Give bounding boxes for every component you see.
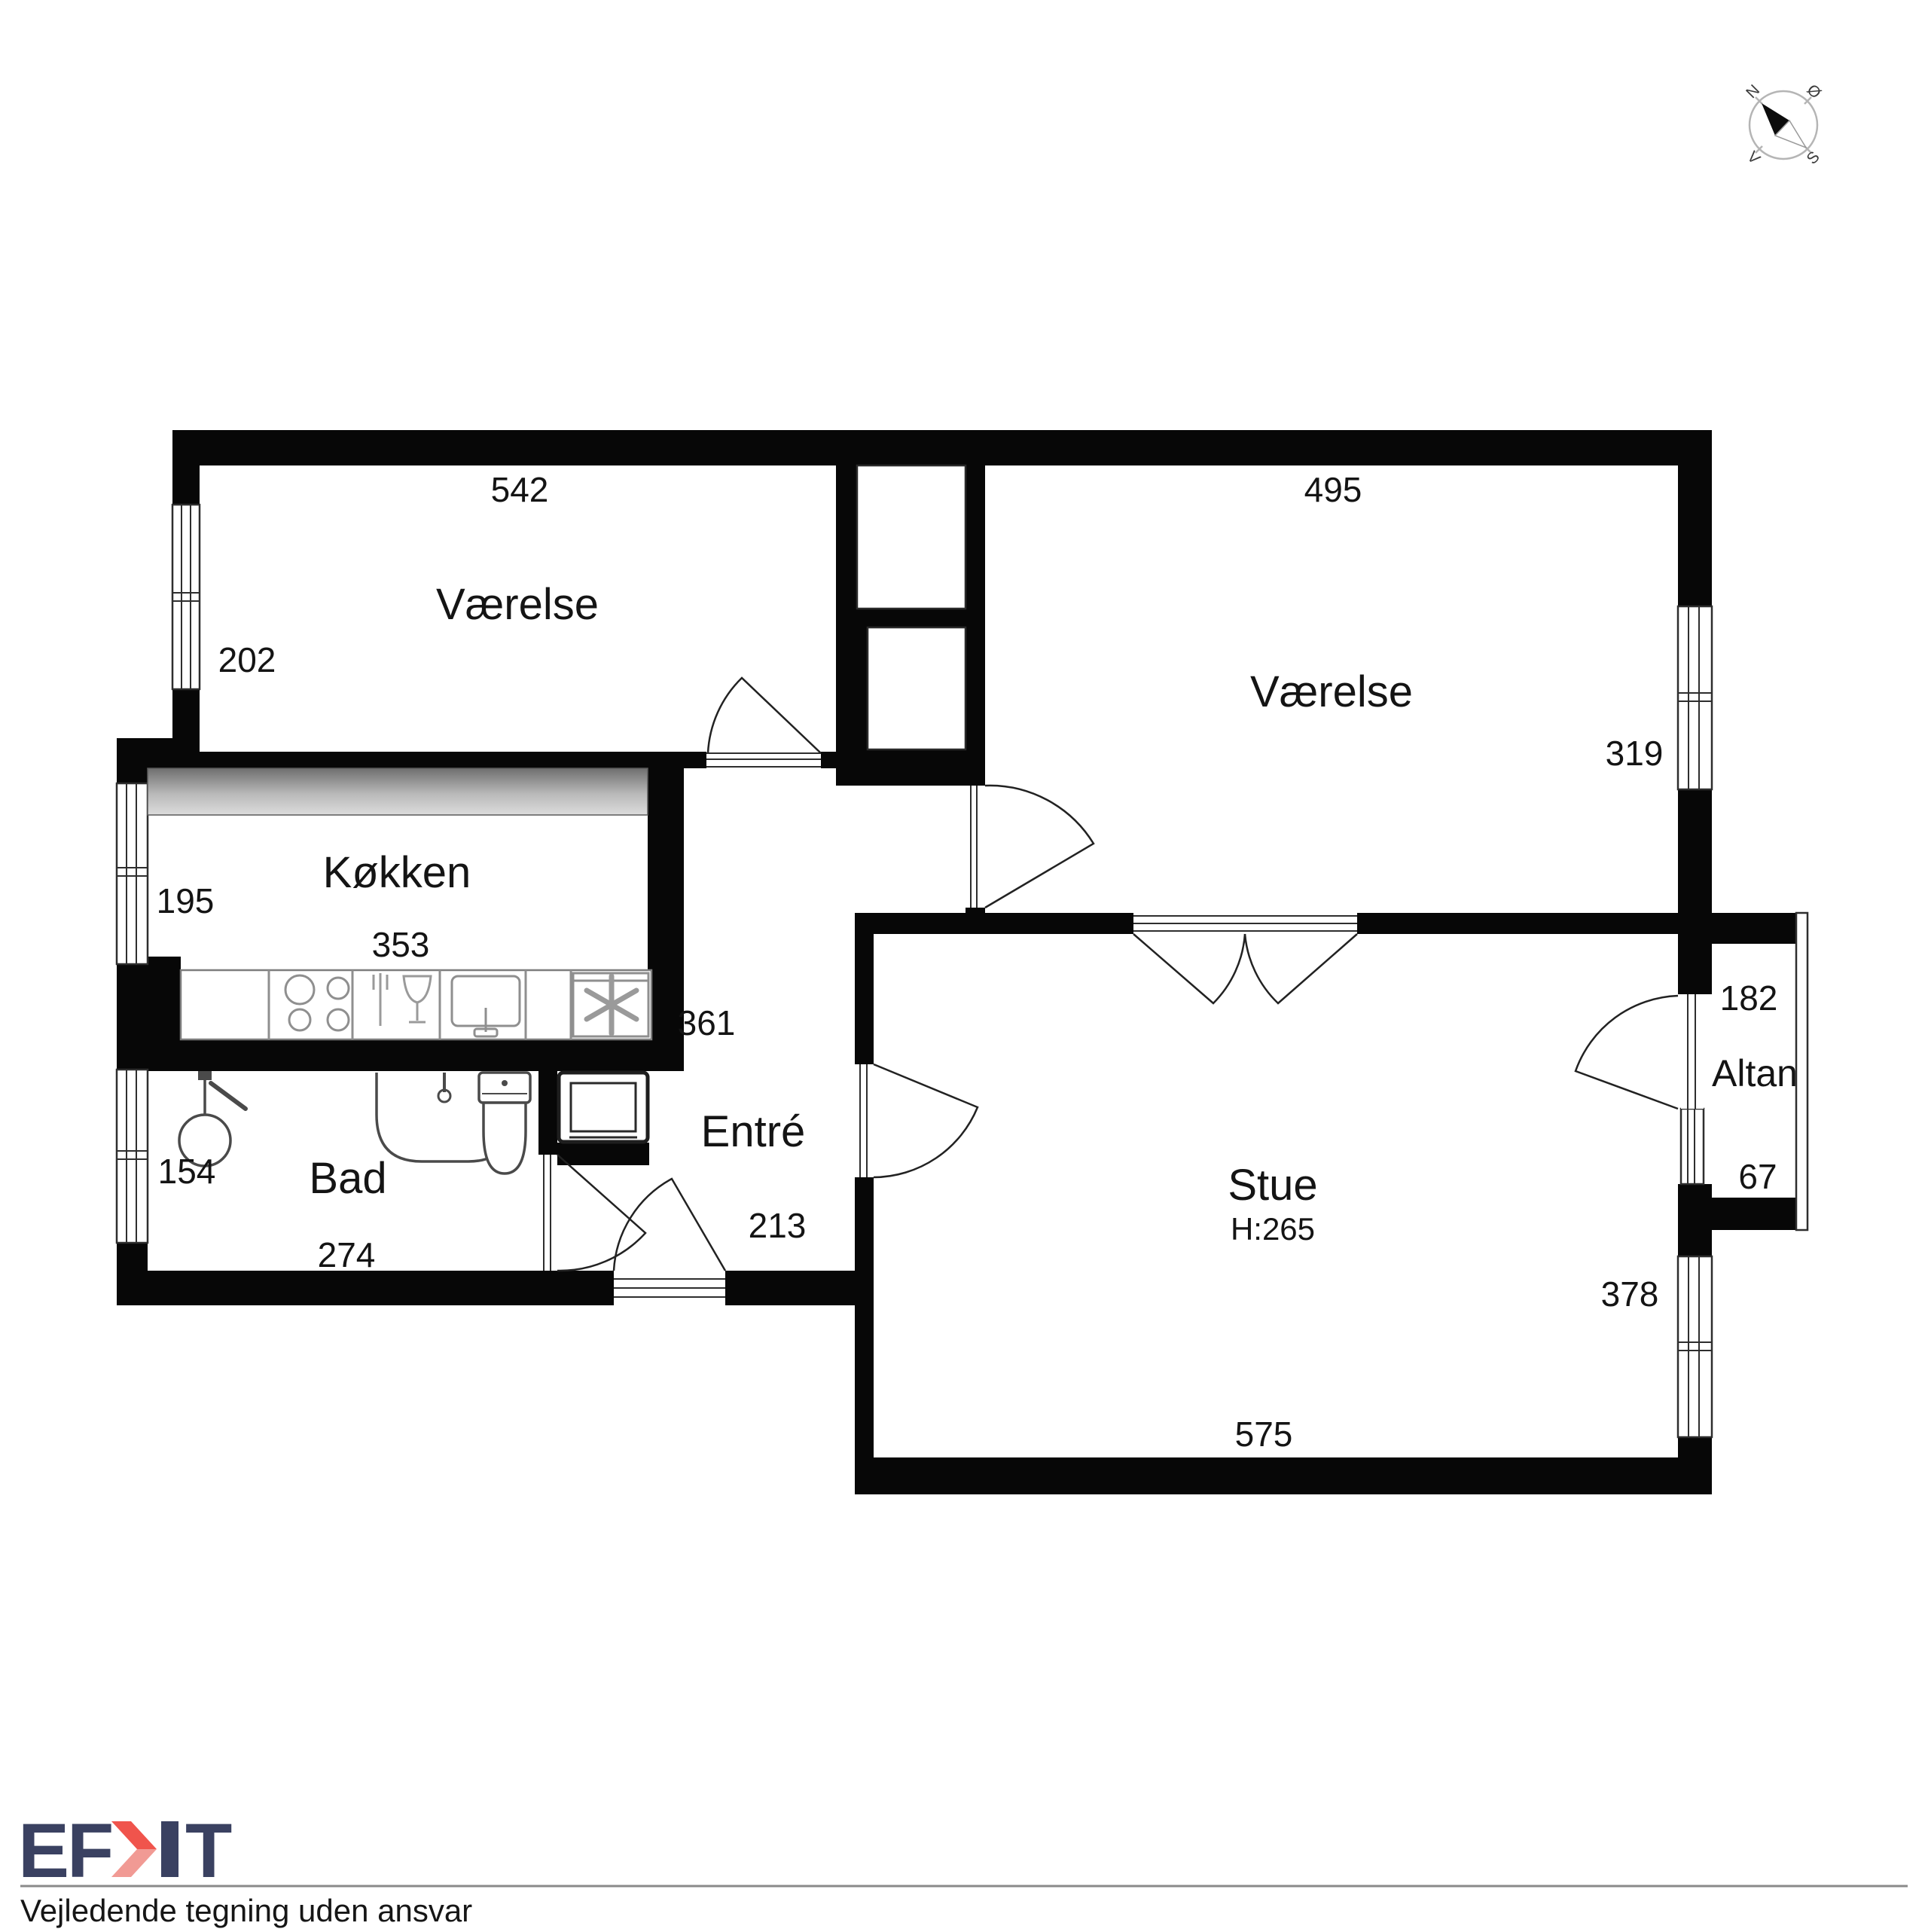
logo-text-t: T — [185, 1808, 232, 1894]
window-stue-right — [1678, 1256, 1712, 1437]
room-label-altan: Altan — [1712, 1052, 1798, 1094]
door-vaerelse2 — [966, 786, 1094, 908]
room-label-entre: Entré — [701, 1107, 806, 1156]
entrance-door — [614, 1179, 725, 1305]
kitchen-worktop — [148, 768, 648, 815]
dim-koekken-left: 195 — [157, 881, 215, 920]
dim-koekken-bottom: 353 — [372, 925, 430, 964]
compass-n: N — [1743, 81, 1763, 102]
logo-text-ef: EF — [18, 1808, 111, 1894]
window-vaerelse2-right — [1678, 606, 1712, 789]
room-label-bad: Bad — [309, 1154, 386, 1203]
room-label-vaerelse-2: Værelse — [1250, 667, 1413, 716]
floor-plan: N Ø S V Værelse 542 202 Værelse 495 319 … — [0, 0, 1928, 1928]
dim-vaerelse1-top: 542 — [491, 470, 549, 509]
dim-stue-right: 378 — [1601, 1274, 1659, 1314]
room-label-vaerelse-1: Værelse — [436, 580, 599, 629]
door-vaerelse1 — [706, 678, 821, 768]
closet-box-bottom — [868, 627, 966, 749]
door-altan — [1576, 994, 1704, 1109]
balcony-railing — [1796, 913, 1807, 1230]
door-entre-stue — [855, 1064, 978, 1177]
dim-altan-top: 182 — [1720, 978, 1778, 1018]
dim-vaerelse2-right: 319 — [1606, 734, 1664, 773]
dim-entre-bottom: 213 — [749, 1206, 807, 1245]
dim-bad-bottom: 274 — [318, 1235, 376, 1274]
window-koekken-left — [117, 783, 148, 964]
double-door-stue — [1133, 913, 1357, 1003]
efkt-logo: EF T — [18, 1808, 232, 1894]
duct-closet-boxes — [857, 465, 966, 749]
footer-disclaimer: Vejledende tegning uden ansvar — [20, 1893, 472, 1928]
window-altan-side — [1681, 1109, 1704, 1184]
compass-icon: N Ø S V — [1743, 81, 1824, 168]
footer: EF T Vejledende tegning uden ansvar — [18, 1808, 1908, 1928]
logo-bar — [161, 1821, 178, 1877]
dim-vaerelse2-top: 495 — [1304, 470, 1362, 509]
dim-altan-bottom: 67 — [1738, 1157, 1777, 1196]
window-bad-left — [117, 1070, 148, 1243]
doors — [538, 678, 1704, 1305]
dim-stue-bottom: 575 — [1235, 1415, 1293, 1454]
dim-bad-left: 154 — [158, 1152, 216, 1191]
toilet-icon — [479, 1073, 530, 1174]
dim-vaerelse1-left: 202 — [218, 640, 276, 679]
kitchen-fixtures — [148, 768, 651, 1039]
room-label-koekken: Køkken — [323, 848, 471, 897]
washing-machine-icon — [559, 1073, 648, 1142]
room-label-stue: Stue — [1228, 1161, 1317, 1210]
closet-box-top — [857, 465, 966, 609]
dim-stue-ceiling: H:265 — [1231, 1211, 1315, 1247]
logo-chevron-lower — [111, 1849, 157, 1877]
door-bad — [538, 1155, 645, 1271]
logo-chevron-upper — [111, 1821, 157, 1849]
dim-entre-top: 361 — [678, 1003, 736, 1042]
window-vaerelse1-left — [172, 505, 200, 689]
